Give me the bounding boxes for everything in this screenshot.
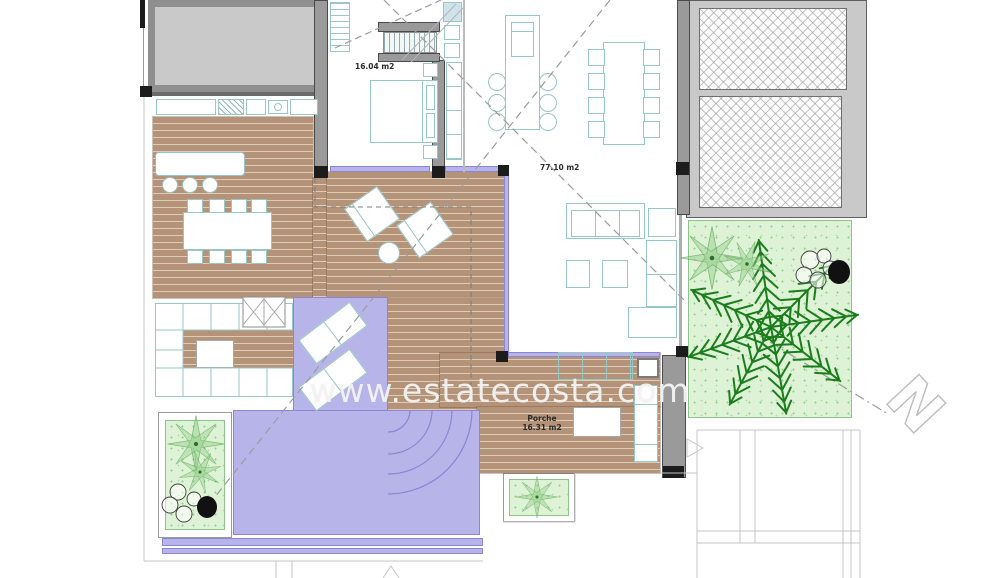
outdoor-chair <box>251 250 267 264</box>
outdoor-counter <box>156 99 216 115</box>
column <box>432 166 445 178</box>
basin-fixture <box>444 43 460 58</box>
wc-fixture <box>444 25 460 40</box>
deck-porch-lower <box>477 407 660 473</box>
stool <box>202 177 218 193</box>
pillow <box>426 85 435 110</box>
dining-chair <box>588 97 605 114</box>
deck-fill <box>313 178 327 298</box>
porch-area: 16.31 m2 <box>516 423 568 432</box>
outdoor-chair <box>187 199 203 213</box>
bedroom-area-label: 16.04 m2 <box>355 62 394 71</box>
outdoor-bar <box>155 152 245 176</box>
living-area-label: 77.10 m2 <box>540 163 579 172</box>
porch-sofa <box>558 352 633 380</box>
outdoor-chair <box>231 250 247 264</box>
bar-stool <box>539 94 557 112</box>
column-topleft <box>140 0 145 28</box>
nightstand <box>423 63 438 77</box>
porch-lounger <box>634 385 658 462</box>
sliding-door-bedroom <box>330 166 430 172</box>
pillow <box>426 113 435 138</box>
wall-porch-right <box>662 355 686 478</box>
staircase <box>383 32 437 53</box>
wall-right <box>677 0 690 215</box>
dining-chair <box>588 49 605 66</box>
round-side-table <box>378 242 400 264</box>
bar-stool <box>539 73 557 91</box>
grill <box>218 99 244 115</box>
outdoor-lounge-table <box>196 340 234 368</box>
bar-stool <box>488 73 506 91</box>
floor-plan: 16.04 m2 77.10 m2 Porche 16.31 m2 <box>0 0 1000 578</box>
dining-chair <box>588 73 605 90</box>
wall-bedroom-left <box>314 0 328 178</box>
shower-tray <box>443 2 462 22</box>
dining-chair <box>588 121 605 138</box>
wardrobe <box>446 62 462 160</box>
wall-edge-left <box>143 28 144 86</box>
sliding-door-living-west <box>504 170 509 353</box>
outdoor-chair <box>231 199 247 213</box>
counter-cabinet <box>290 99 318 115</box>
kitchen-sink <box>511 22 534 57</box>
stair-ladder <box>330 2 350 52</box>
pool-overflow-strip-1 <box>162 538 483 546</box>
stool <box>182 177 198 193</box>
armchair <box>648 208 676 237</box>
porch-label: Porche 16.31 m2 <box>516 414 568 433</box>
window-right <box>679 215 682 352</box>
porch-coffee-table <box>573 407 621 437</box>
wall-stair-lower <box>378 53 440 62</box>
outdoor-chair <box>209 250 225 264</box>
sofa-cushions <box>571 210 640 237</box>
sink-basin <box>274 103 282 111</box>
nightstand <box>423 145 438 159</box>
garden-right <box>688 220 852 418</box>
sliding-door-hall <box>445 166 502 172</box>
column-porch <box>663 466 684 478</box>
door-swing-arrow <box>687 439 703 457</box>
porch-name: Porche <box>516 414 568 423</box>
bar-stool <box>539 113 557 131</box>
sink-divider <box>512 31 533 32</box>
pergola-terrace-topleft <box>148 0 325 92</box>
planter-left <box>165 420 225 530</box>
bar-stool <box>488 113 506 131</box>
column <box>676 346 688 357</box>
chaise <box>646 240 677 307</box>
pool-overflow-strip-2 <box>162 548 483 554</box>
carport-panel-2 <box>699 96 842 208</box>
dining-table <box>603 42 645 145</box>
dining-chair <box>643 49 660 66</box>
carport-panel-1 <box>699 8 847 90</box>
bar-stool <box>488 94 506 112</box>
column <box>498 165 509 176</box>
column <box>496 351 508 362</box>
stool <box>162 177 178 193</box>
ottoman <box>566 260 590 288</box>
ottoman <box>602 260 628 288</box>
outdoor-chair <box>209 199 225 213</box>
planter-center <box>509 479 569 516</box>
wall-below-terrace <box>148 92 325 96</box>
porch-side-table <box>637 358 659 378</box>
outdoor-chair <box>187 250 203 264</box>
outdoor-dining-table <box>183 212 272 250</box>
column-left <box>140 86 152 97</box>
counter-cabinet <box>246 99 266 115</box>
wall-stair-upper <box>378 22 440 32</box>
bed-line <box>422 81 423 142</box>
north-arrow: N <box>872 363 957 447</box>
partition <box>463 0 465 172</box>
pool-lower <box>233 410 480 535</box>
outdoor-chair <box>251 199 267 213</box>
dining-chair <box>643 73 660 90</box>
dining-chair <box>643 121 660 138</box>
column <box>676 162 689 175</box>
sofa-module <box>628 307 677 338</box>
column <box>314 166 328 178</box>
dining-chair <box>643 97 660 114</box>
